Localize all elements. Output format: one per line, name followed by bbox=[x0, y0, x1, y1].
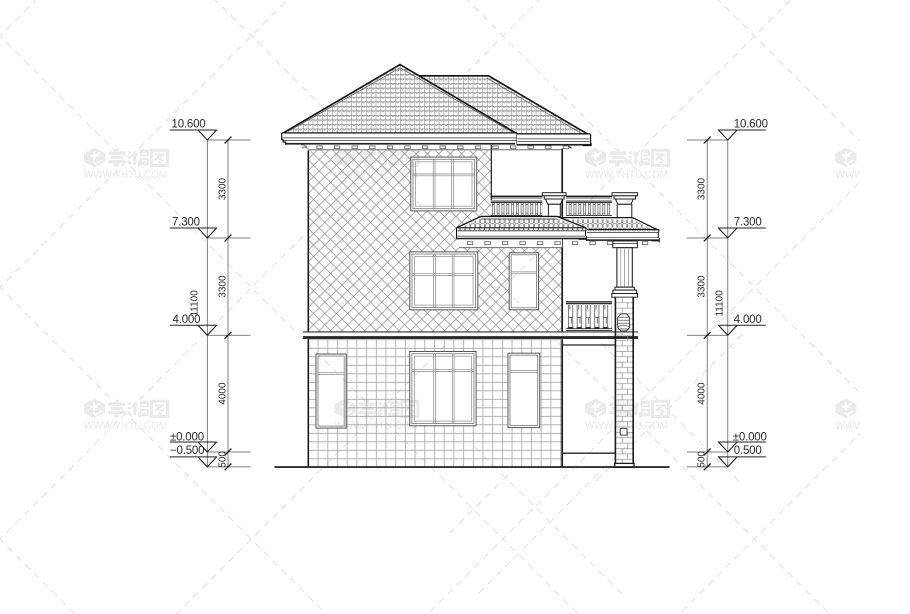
svg-text:3300: 3300 bbox=[218, 275, 229, 298]
svg-text:3300: 3300 bbox=[697, 275, 708, 298]
svg-text:500: 500 bbox=[697, 451, 708, 468]
svg-text:3300: 3300 bbox=[697, 177, 708, 200]
svg-text:11100: 11100 bbox=[715, 290, 726, 317]
svg-text:10.600: 10.600 bbox=[734, 119, 768, 131]
svg-text:11100: 11100 bbox=[190, 290, 201, 317]
svg-text:±0.000: ±0.000 bbox=[170, 432, 204, 444]
svg-text:4.000: 4.000 bbox=[734, 314, 762, 326]
svg-text:0.500: 0.500 bbox=[734, 445, 762, 457]
svg-text:500: 500 bbox=[218, 451, 229, 468]
svg-text:10.600: 10.600 bbox=[172, 119, 206, 131]
svg-text:7.300: 7.300 bbox=[734, 217, 762, 229]
svg-text:3300: 3300 bbox=[218, 177, 229, 200]
svg-text:4000: 4000 bbox=[218, 382, 229, 405]
svg-text:7.300: 7.300 bbox=[172, 217, 200, 229]
svg-text:±0.000: ±0.000 bbox=[733, 432, 767, 444]
svg-text:4000: 4000 bbox=[697, 382, 708, 405]
svg-text:−0.500: −0.500 bbox=[170, 445, 204, 457]
